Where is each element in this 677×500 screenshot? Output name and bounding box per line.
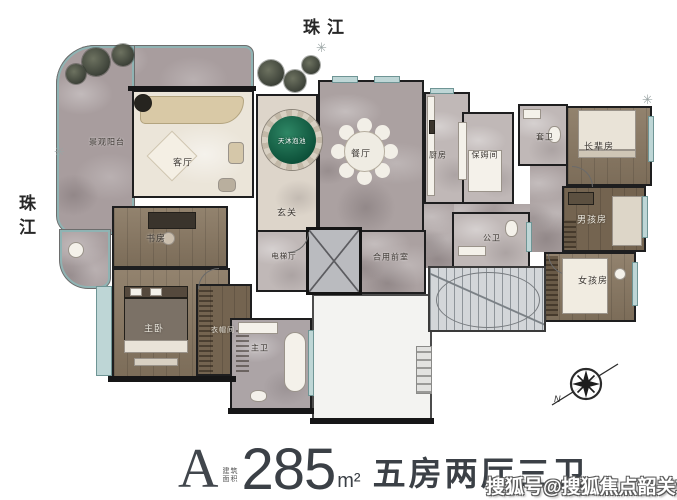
public-bath-sink: [458, 246, 486, 256]
bay-window: [96, 286, 112, 376]
foyer-pool: 天沐泡池: [268, 116, 316, 164]
balcony-bottom: [60, 230, 110, 288]
kitchen-counter: [427, 96, 435, 196]
window: [374, 76, 400, 83]
area-value: 285: [241, 446, 335, 494]
watermark: 搜狐号@搜狐焦点韶关站: [486, 472, 677, 499]
room-label-elder: 长辈房: [584, 140, 614, 153]
room-label-girl: 女孩房: [578, 274, 608, 287]
public-bath-toilet: [505, 220, 518, 237]
girl-flower: [614, 268, 626, 280]
unit-letter: A: [178, 446, 218, 494]
elevator-shaft: [306, 227, 362, 295]
stairs-outline: [436, 272, 540, 328]
master-bed: [124, 298, 188, 342]
corridor-bath: [424, 204, 454, 268]
wall: [128, 86, 256, 91]
room-label-balcony: 景观阳台: [89, 137, 125, 148]
living-armchair: [228, 142, 244, 164]
boy-bed: [612, 196, 642, 246]
kitchen-counter2: [458, 122, 467, 180]
room-label-boy: 男孩房: [577, 213, 607, 226]
floor-plan-page: 珠江 珠江 ✳ ✳ ✳ 天沐泡池: [0, 0, 677, 500]
plan-annotation-box: [416, 346, 432, 394]
window: [632, 262, 638, 306]
boy-wardrobe: [564, 220, 576, 248]
room-label-elevator-hall: 电梯厅: [271, 251, 297, 262]
room-label-nanny: 保姆间: [472, 150, 499, 161]
room-label-shared-front: 合用前室: [373, 252, 409, 263]
boy-desk: [568, 192, 594, 205]
room-label-master: 主卧: [144, 322, 164, 335]
window: [430, 88, 454, 94]
river-label-top: 珠江: [303, 13, 351, 38]
closet-wardrobe-right: [236, 330, 249, 372]
master-bath-tub: [284, 332, 306, 392]
room-label-pool: 天沐泡池: [278, 135, 306, 145]
room-lower-hall: [312, 294, 432, 422]
wall: [228, 408, 314, 414]
area-unit: m²: [337, 471, 360, 491]
room-label-suite-bath: 套卫: [536, 132, 554, 143]
balcony-table: [68, 242, 84, 258]
plant-icon: ✳: [54, 144, 65, 160]
room-label-dining: 餐厅: [351, 147, 371, 160]
corridor-bedrooms: [530, 166, 566, 252]
room-label-closet: 衣帽间: [211, 325, 235, 335]
window: [642, 196, 648, 238]
tree-icon: [112, 44, 134, 66]
plant-icon: ✳: [642, 92, 653, 108]
living-sofa: [140, 96, 244, 124]
living-pouf: [218, 178, 236, 192]
master-pillow: [150, 288, 162, 296]
window: [526, 222, 532, 252]
kitchen-cooktop: [429, 120, 435, 134]
river-label-left: 珠江: [13, 194, 38, 242]
master-pillow: [130, 288, 142, 296]
window: [648, 116, 654, 162]
tree-icon: [302, 56, 320, 74]
master-bath-sinks: [238, 322, 278, 334]
wall: [108, 376, 236, 382]
tree-icon: [82, 48, 110, 76]
living-plant: [134, 94, 152, 112]
plant-icon: ✳: [316, 40, 327, 56]
area-note-line1: 建筑: [222, 468, 238, 476]
room-label-kitchen: 厨房: [429, 150, 447, 161]
wall: [310, 418, 434, 424]
window: [308, 330, 314, 396]
room-label-master-bath: 主卫: [251, 343, 269, 354]
compass-icon: N: [548, 358, 622, 410]
area-note: 建筑 面积: [222, 468, 238, 484]
compass-north-label: N: [554, 394, 561, 404]
tree-icon: [66, 64, 86, 84]
room-label-public-bath: 公卫: [483, 233, 501, 244]
area-note-line2: 面积: [222, 476, 238, 484]
master-bath-toilet: [250, 390, 267, 402]
room-label-living: 客厅: [173, 156, 193, 169]
master-bed-foot: [124, 340, 188, 353]
room-label-foyer: 玄关: [277, 206, 297, 219]
window: [332, 76, 358, 83]
suite-bath-sink: [523, 109, 541, 119]
room-label-study: 书房: [146, 232, 166, 245]
study-desk: [148, 212, 196, 229]
tree-icon: [258, 60, 284, 86]
master-bench: [134, 358, 178, 366]
tree-icon: [284, 70, 306, 92]
